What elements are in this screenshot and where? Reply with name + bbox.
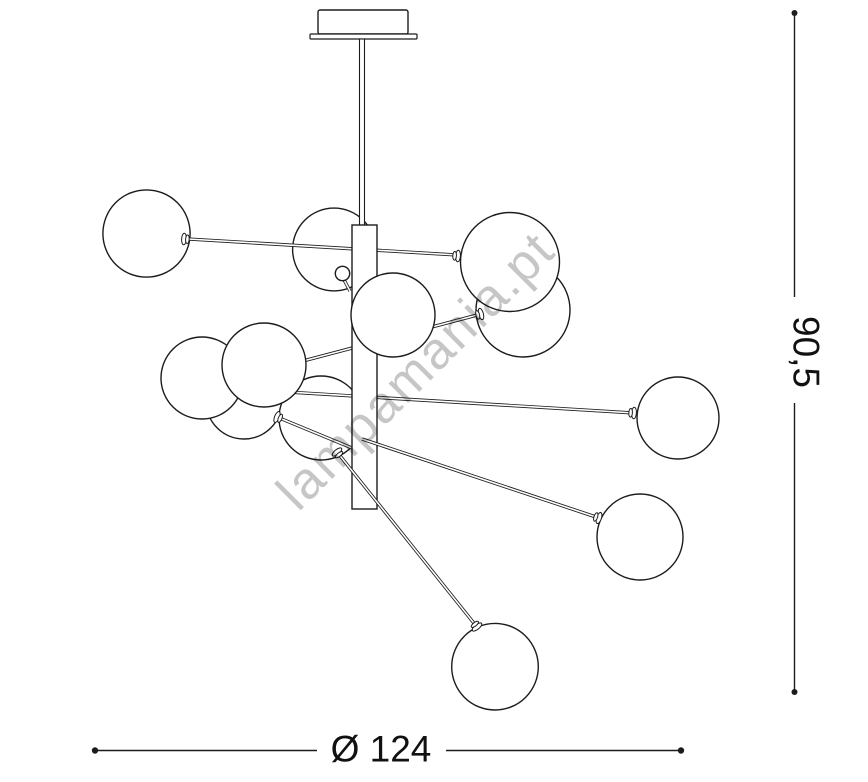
arm-ferrule (628, 407, 636, 419)
width-dimension-label: Ø 124 (331, 729, 432, 770)
height-dimension: 90,5 (786, 10, 827, 695)
knob (335, 266, 349, 280)
arm-ferrule (181, 233, 189, 245)
globe (222, 323, 306, 407)
globe (103, 190, 190, 277)
height-dimension-end-dot-top (792, 10, 798, 16)
globe (637, 377, 719, 459)
product-dimension-diagram: lampamania.pt Ø 124 90,5 (0, 0, 868, 782)
arm (337, 452, 477, 627)
height-dimension-label: 90,5 (786, 316, 827, 388)
globe (597, 494, 683, 580)
stem-rod (360, 39, 365, 226)
height-dimension-end-dot-bottom (792, 689, 798, 695)
width-dimension: Ø 124 (92, 729, 684, 770)
chandelier-diagram-svg: lampamania.pt Ø 124 90,5 (0, 0, 868, 782)
width-dimension-end-dot-left (92, 747, 98, 753)
arm-ferrule (452, 250, 460, 262)
globe (452, 623, 539, 710)
arm (362, 439, 599, 518)
canopy-box (318, 10, 408, 34)
canopy-plate (310, 34, 417, 39)
width-dimension-end-dot-right (678, 747, 684, 753)
